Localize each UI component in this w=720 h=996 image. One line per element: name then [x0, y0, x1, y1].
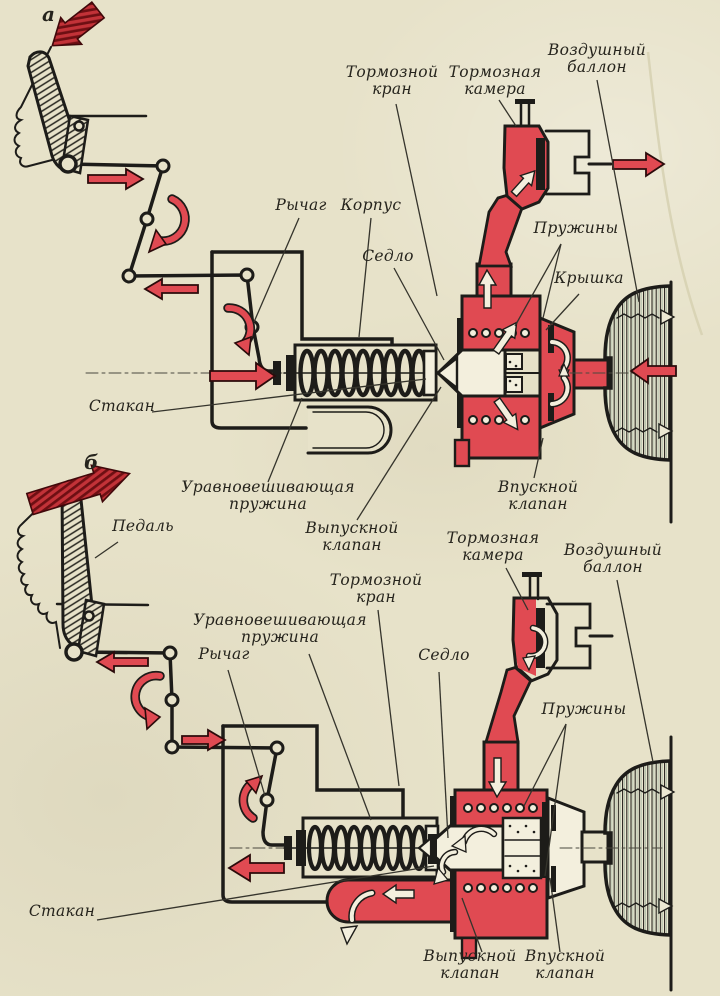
scanned-diagram-page: а Тормозной кран Тормозная камера Воздуш… — [0, 0, 720, 996]
label-bottom-air-tank: Воздушный баллон — [564, 542, 662, 575]
rotation-arrow-bottom-2 — [243, 776, 262, 818]
chamber-pipe-top — [479, 195, 522, 266]
arrow-right-icon — [88, 169, 143, 189]
intake-valve-bottom — [503, 818, 541, 878]
label-bottom-lever: Рычаг — [198, 646, 249, 663]
label-top-brake-valve: Тормозной кран — [346, 64, 438, 97]
label-top-seat: Седло — [362, 248, 414, 265]
push-rod-bottom — [284, 836, 292, 860]
label-bottom-brake-chamber: Тормозная камера — [447, 530, 540, 563]
fork-bracket-top — [546, 131, 589, 194]
rotation-arrow-top-1 — [149, 199, 185, 252]
rotation-arrow-bottom-1 — [135, 676, 160, 729]
label-bottom-intake-valve: Впускной клапан — [525, 948, 605, 981]
label-top-springs: Пружины — [534, 220, 619, 237]
arrow-left-icon — [229, 855, 284, 881]
label-bottom-pedal: Педаль — [112, 518, 174, 535]
valve-cover-top — [540, 318, 574, 428]
rotation-arrow-top-2 — [228, 308, 251, 355]
balance-spring-bottom — [284, 818, 438, 877]
spring-cup-top — [424, 351, 436, 395]
intake-valve-top — [505, 354, 540, 392]
label-top-housing: Корпус — [341, 197, 402, 214]
label-top-balance-spring: Уравновешивающая пружина — [181, 479, 355, 512]
diaphragm-top — [536, 138, 545, 190]
label-top-air-tank: Воздушный баллон — [548, 42, 646, 75]
pedal-top — [15, 0, 147, 173]
state-letter-a: а — [42, 2, 55, 26]
label-top-lever: Рычаг — [275, 197, 326, 214]
arrow-right-icon — [210, 363, 275, 389]
arrow-left-icon — [145, 279, 198, 299]
output-arrow-icon — [613, 153, 664, 176]
label-bottom-springs: Пружины — [542, 701, 627, 718]
chamber-pipe-bottom — [486, 667, 531, 742]
air-tank-top — [570, 282, 676, 522]
brake-valve-body-top — [438, 264, 574, 466]
pedal-bottom — [18, 455, 149, 660]
state-letter-b: б — [84, 450, 98, 474]
breather-tube-top — [308, 407, 391, 453]
push-rod-top — [273, 361, 281, 385]
label-bottom-cup: Стакан — [29, 903, 95, 920]
label-bottom-brake-valve: Тормозной кран — [330, 572, 422, 605]
fork-bracket-bottom — [547, 604, 590, 668]
label-bottom-balance-spring: Уравновешивающая пружина — [193, 612, 367, 645]
label-bottom-exhaust-valve: Выпускной клапан — [423, 948, 516, 981]
diagram-canvas — [0, 0, 720, 996]
label-top-brake-chamber: Тормозная камера — [449, 64, 542, 97]
label-top-cup: Стакан — [89, 398, 155, 415]
label-bottom-seat: Седло — [418, 647, 470, 664]
balance-spring-top — [273, 345, 438, 400]
label-top-exhaust-valve: Выпускной клапан — [305, 520, 398, 553]
label-top-cover: Крышка — [554, 270, 624, 287]
breather-tube-bottom — [327, 880, 458, 944]
arrow-left-icon — [97, 652, 148, 672]
label-top-intake-valve: Впускной клапан — [498, 479, 578, 512]
brake-chamber-top — [479, 99, 664, 266]
